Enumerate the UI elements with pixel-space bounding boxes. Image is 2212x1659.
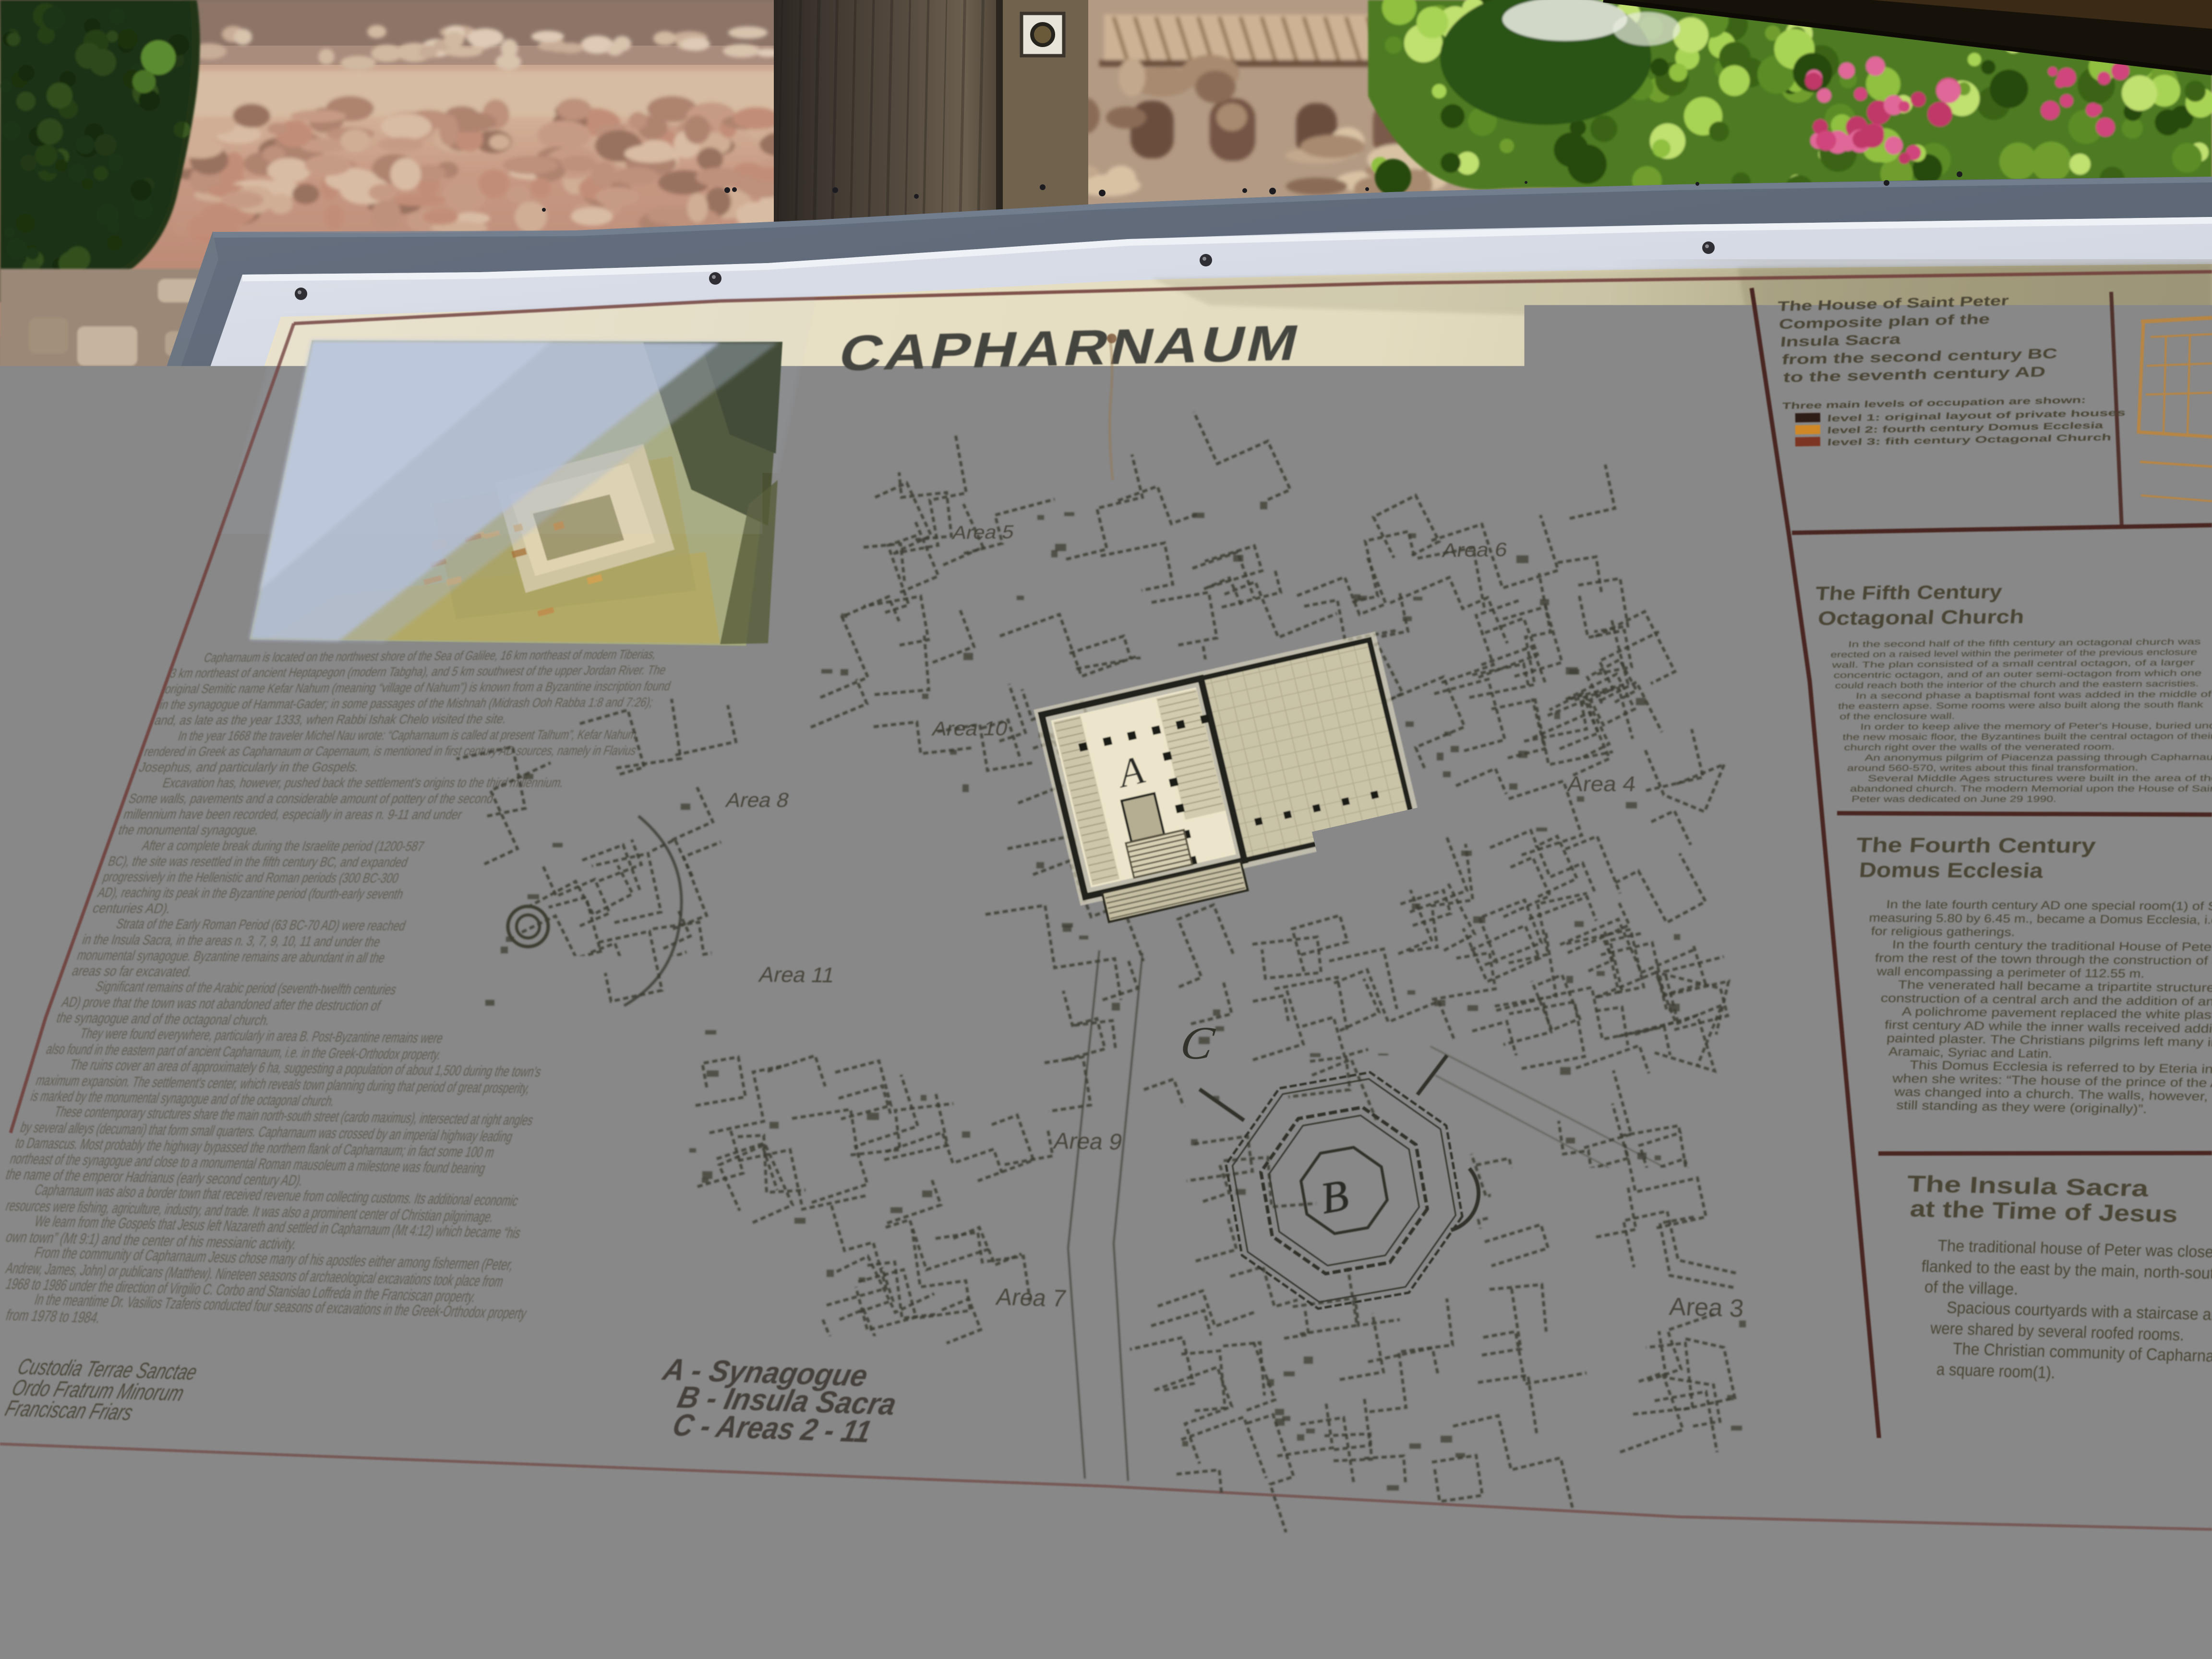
svg-text:areas so far excavated.: areas so far excavated. [70, 963, 194, 980]
svg-text:Area 7: Area 7 [994, 1283, 1069, 1312]
svg-text:measuring 5.80 by 6.45 m., bec: measuring 5.80 by 6.45 m., became a Domu… [1869, 912, 2212, 927]
svg-text:centuries AD).: centuries AD). [91, 901, 173, 916]
svg-text:Area 11: Area 11 [757, 962, 837, 987]
svg-text:Area 10: Area 10 [930, 717, 1010, 740]
svg-text:Some walls, pavements and a co: Some walls, pavements and a considerable… [127, 792, 495, 806]
svg-text:for religious gatherings.: for religious gatherings. [1871, 925, 2016, 939]
svg-text:Area 8: Area 8 [724, 789, 792, 811]
svg-text:The Fifth Century: The Fifth Century [1815, 581, 2003, 605]
svg-text:the monumental synagogue.: the monumental synagogue. [117, 823, 262, 838]
svg-text:around 560-570, writes about t: around 560-570, writes about this final … [1847, 763, 2139, 773]
svg-text:The Fourth Century: The Fourth Century [1855, 833, 2097, 857]
svg-text:Several Middle Ages structures: Several Middle Ages structures were buil… [1867, 774, 2212, 783]
svg-text:Strata of the Early Roman Peri: Strata of the Early Roman Period (63 BC-… [114, 916, 408, 934]
svg-text:the eastern apse. Some rooms w: the eastern apse. Some rooms were also b… [1838, 700, 2204, 711]
svg-text:monumental synagogue. Byzantin: monumental synagogue. Byzantine remains … [75, 948, 387, 966]
svg-text:AD), reaching its peak in the: AD), reaching its peak in the Byzantine … [96, 885, 406, 902]
svg-text:BC), the site was resettled in: BC), the site was resettled in the fifth… [106, 854, 410, 870]
svg-text:Area 9: Area 9 [1052, 1128, 1125, 1155]
svg-text:church right over the walls of: church right over the walls of the vener… [1844, 743, 2116, 753]
svg-text:CAPHARNAUM: CAPHARNAUM [834, 314, 1307, 382]
svg-text:After a complete break during: After a complete break during the Israel… [140, 838, 426, 854]
svg-text:Peter was dedicated on June 29: Peter was dedicated on June 29 1990. [1851, 794, 2056, 804]
svg-text:Josephus, and particularly in: Josephus, and particularly in the Gospel… [137, 760, 361, 775]
svg-text:An anonymus pilgrim of Piacenz: An anonymus pilgrim of Piacenza passing … [1864, 753, 2212, 763]
svg-text:abandoned church. The modern M: abandoned church. The modern Memorial up… [1850, 784, 2212, 794]
svg-text:In a second phase a baptismal: In a second phase a baptismal font was a… [1855, 690, 2212, 701]
svg-text:millennium have been recorded,: millennium have been recorded, especiall… [121, 807, 464, 822]
svg-text:In order to keep alive the mem: In order to keep alive the memory of Pet… [1860, 721, 2212, 732]
svg-text:Octagonal Church: Octagonal Church [1817, 606, 2025, 630]
svg-text:In the late fourth century AD: In the late fourth century AD one specia… [1886, 898, 2212, 913]
svg-text:the new mosaic floor, the Byza: the new mosaic floor, the Byzantines bui… [1842, 732, 2212, 742]
svg-text:progressively in the Hellenist: progressively in the Hellenistic and Rom… [101, 870, 401, 886]
svg-text:Area 4: Area 4 [1566, 772, 1637, 796]
svg-text:Insula Sacra: Insula Sacra [1779, 331, 1901, 350]
svg-text:Domus Ecclesia: Domus Ecclesia [1858, 858, 2044, 882]
svg-text:of the enclosure wall.: of the enclosure wall. [1839, 711, 1955, 721]
svg-text:wall encompassing a perimeter: wall encompassing a perimeter of 112.55 … [1876, 965, 2145, 980]
svg-text:Significant remains of the Ara: Significant remains of the Arabic period… [94, 979, 398, 998]
svg-text:07/08/2014 03:45: 07/08/2014 03:45 [1539, 1397, 2068, 1482]
svg-text:Area 5: Area 5 [950, 521, 1016, 543]
svg-text:in the Insula Sacra, in the ar: in the Insula Sacra, in the areas n. 3, … [80, 932, 383, 950]
